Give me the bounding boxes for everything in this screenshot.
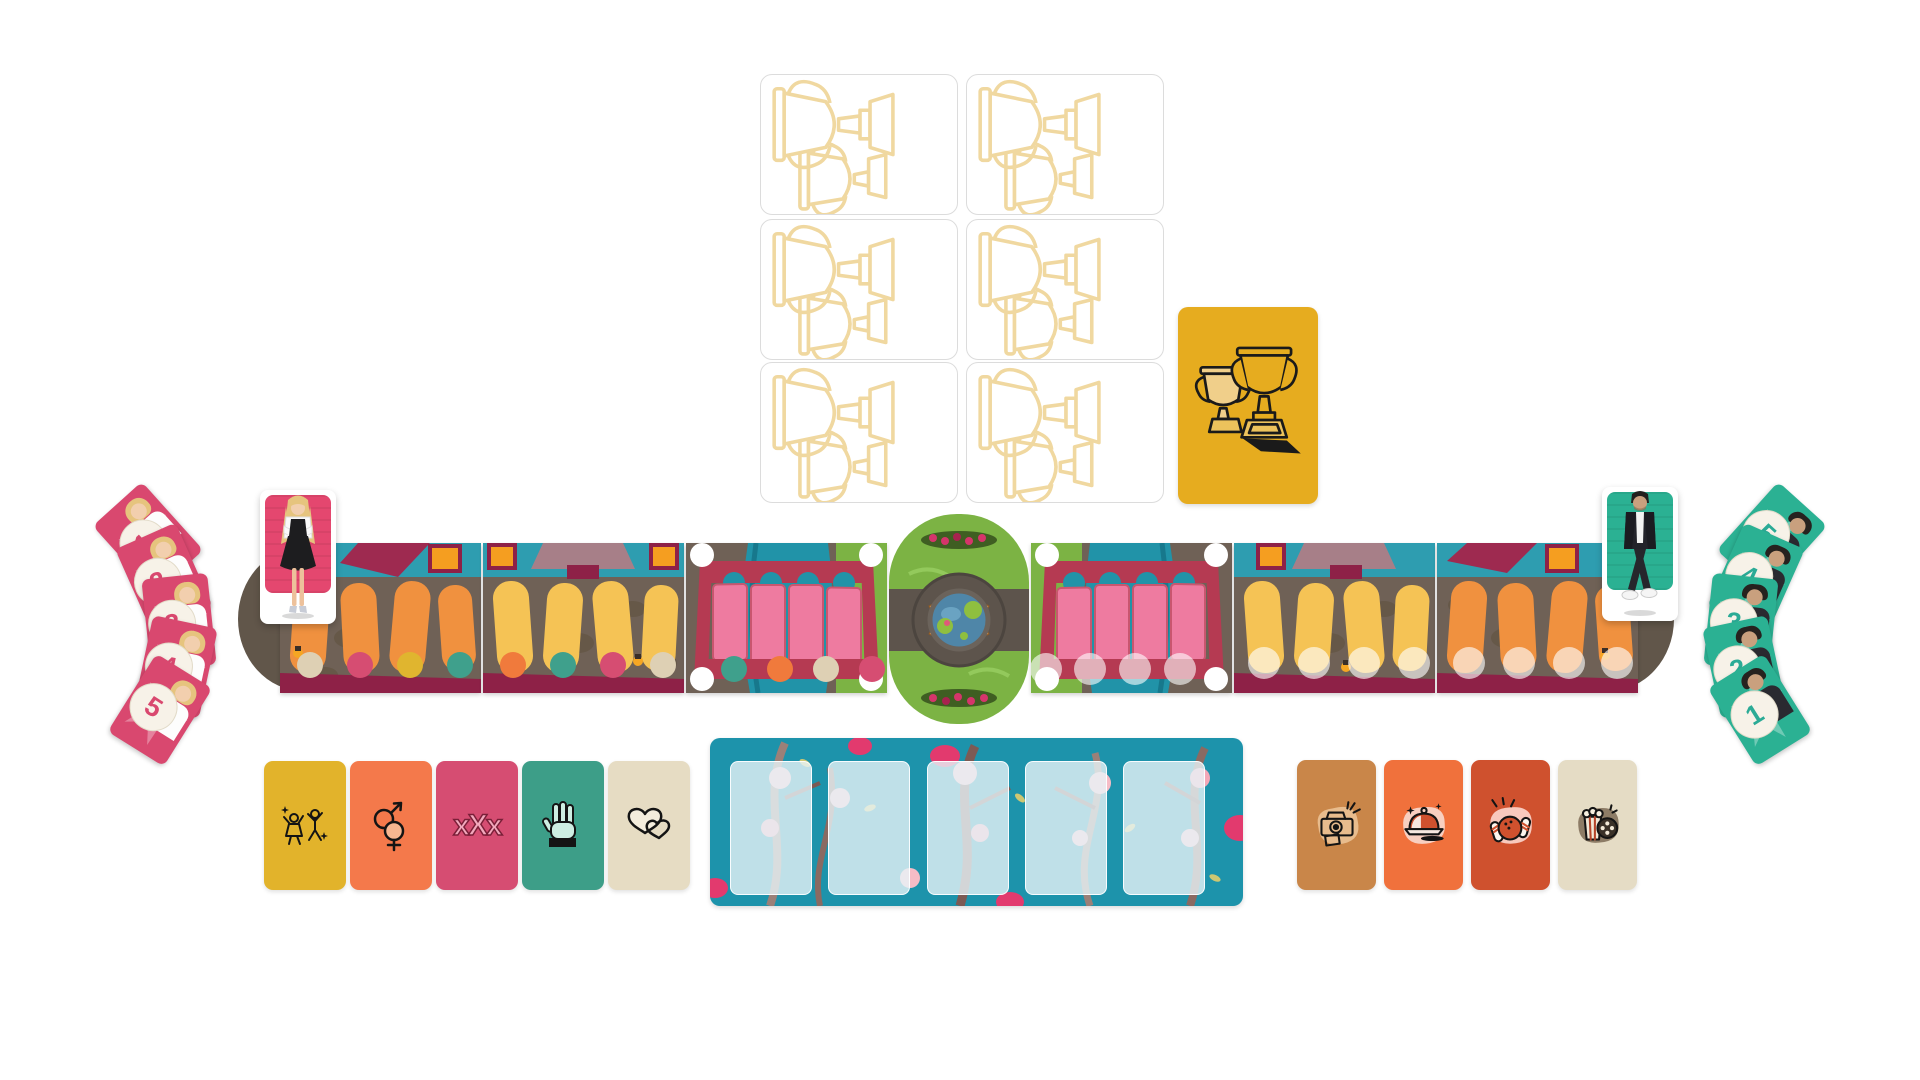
dinner-cloche-icon bbox=[1395, 796, 1453, 854]
board-tile-garden[interactable] bbox=[889, 514, 1029, 724]
trophy-card-back[interactable] bbox=[966, 74, 1164, 215]
trophy-card-back[interactable] bbox=[760, 74, 958, 215]
board-tile-bridge-right[interactable] bbox=[1031, 543, 1232, 693]
date-card-camera[interactable] bbox=[1297, 760, 1376, 890]
trophy-outline-icon bbox=[966, 74, 1149, 215]
date-slot-2[interactable] bbox=[828, 761, 910, 895]
category-card-hearts[interactable] bbox=[608, 761, 690, 890]
trophy-outline-icon bbox=[760, 74, 943, 215]
instant-camera-icon bbox=[1308, 796, 1366, 854]
date-slot-4[interactable] bbox=[1025, 761, 1107, 895]
date-card-movie[interactable] bbox=[1558, 760, 1637, 890]
trophy-outline-icon bbox=[760, 219, 943, 360]
dancing-figures-icon bbox=[277, 798, 333, 854]
two-hearts-icon bbox=[621, 798, 677, 854]
category-card-gender[interactable] bbox=[350, 761, 432, 890]
trophy-card-revealed[interactable] bbox=[1178, 307, 1318, 504]
street-tile-art bbox=[483, 543, 684, 693]
trophy-outline-icon bbox=[760, 362, 943, 503]
game-table: 1 2 3 4 5 5 bbox=[0, 0, 1920, 1080]
category-card-hand[interactable] bbox=[522, 761, 604, 890]
character-card-woman[interactable] bbox=[260, 490, 336, 624]
trophy-outline-icon bbox=[966, 362, 1149, 503]
two-trophies-icon bbox=[1194, 335, 1302, 475]
man-figure bbox=[1610, 491, 1670, 617]
category-card-xxx[interactable]: xXx bbox=[436, 761, 518, 890]
three-finger-hand-icon bbox=[535, 798, 591, 854]
date-card-dinner[interactable] bbox=[1384, 760, 1463, 890]
woman-figure bbox=[268, 494, 328, 620]
garden-tile-art bbox=[889, 514, 1029, 724]
date-slots-board bbox=[710, 738, 1243, 906]
gender-symbols-icon bbox=[363, 798, 419, 854]
date-slot-1[interactable] bbox=[730, 761, 812, 895]
date-slot-5[interactable] bbox=[1123, 761, 1205, 895]
trophy-card-back[interactable] bbox=[966, 362, 1164, 503]
bridge-tile-art bbox=[686, 543, 887, 693]
bridge-tile-art bbox=[1031, 543, 1232, 693]
date-board bbox=[240, 514, 1700, 726]
xxx-label: xXx bbox=[453, 809, 500, 843]
board-tile-street-2[interactable] bbox=[483, 543, 684, 693]
character-card-man[interactable] bbox=[1602, 487, 1678, 621]
popcorn-movie-icon bbox=[1569, 796, 1627, 854]
bowling-icon bbox=[1482, 796, 1540, 854]
trophy-outline-icon bbox=[966, 219, 1149, 360]
trophy-card-back[interactable] bbox=[760, 219, 958, 360]
trophy-card-back[interactable] bbox=[760, 362, 958, 503]
trophy-card-back[interactable] bbox=[966, 219, 1164, 360]
date-slot-3[interactable] bbox=[927, 761, 1009, 895]
board-tile-bridge-left[interactable] bbox=[686, 543, 887, 693]
street-tile-art bbox=[1234, 543, 1435, 693]
category-card-dancing[interactable] bbox=[264, 761, 346, 890]
date-card-bowling[interactable] bbox=[1471, 760, 1550, 890]
board-tile-street-3[interactable] bbox=[1234, 543, 1435, 693]
